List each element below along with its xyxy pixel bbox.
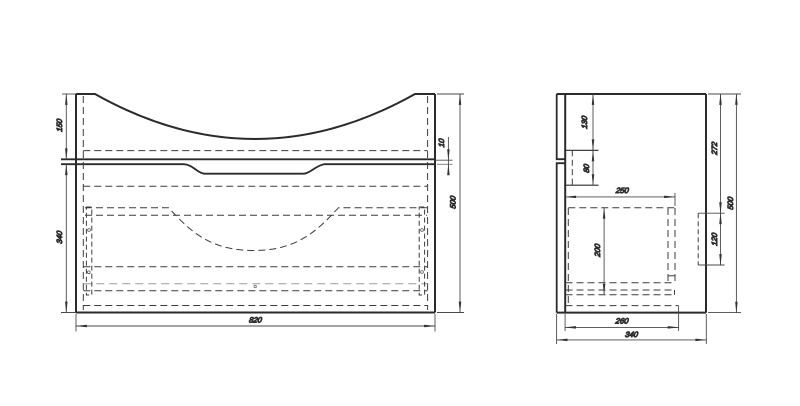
svg-text:500: 500 bbox=[449, 195, 458, 210]
svg-text:120: 120 bbox=[710, 232, 719, 247]
svg-text:10: 10 bbox=[437, 137, 446, 148]
svg-text:340: 340 bbox=[625, 330, 640, 339]
svg-text:200: 200 bbox=[593, 243, 602, 259]
svg-text:130: 130 bbox=[580, 115, 589, 130]
svg-text:820: 820 bbox=[248, 316, 263, 325]
svg-text:250: 250 bbox=[614, 186, 630, 195]
svg-text:500: 500 bbox=[726, 196, 735, 211]
svg-text:272: 272 bbox=[710, 141, 719, 157]
svg-text:340: 340 bbox=[55, 230, 64, 245]
svg-text:80: 80 bbox=[582, 163, 591, 174]
svg-text:150: 150 bbox=[55, 118, 64, 133]
svg-text:260: 260 bbox=[614, 317, 630, 326]
